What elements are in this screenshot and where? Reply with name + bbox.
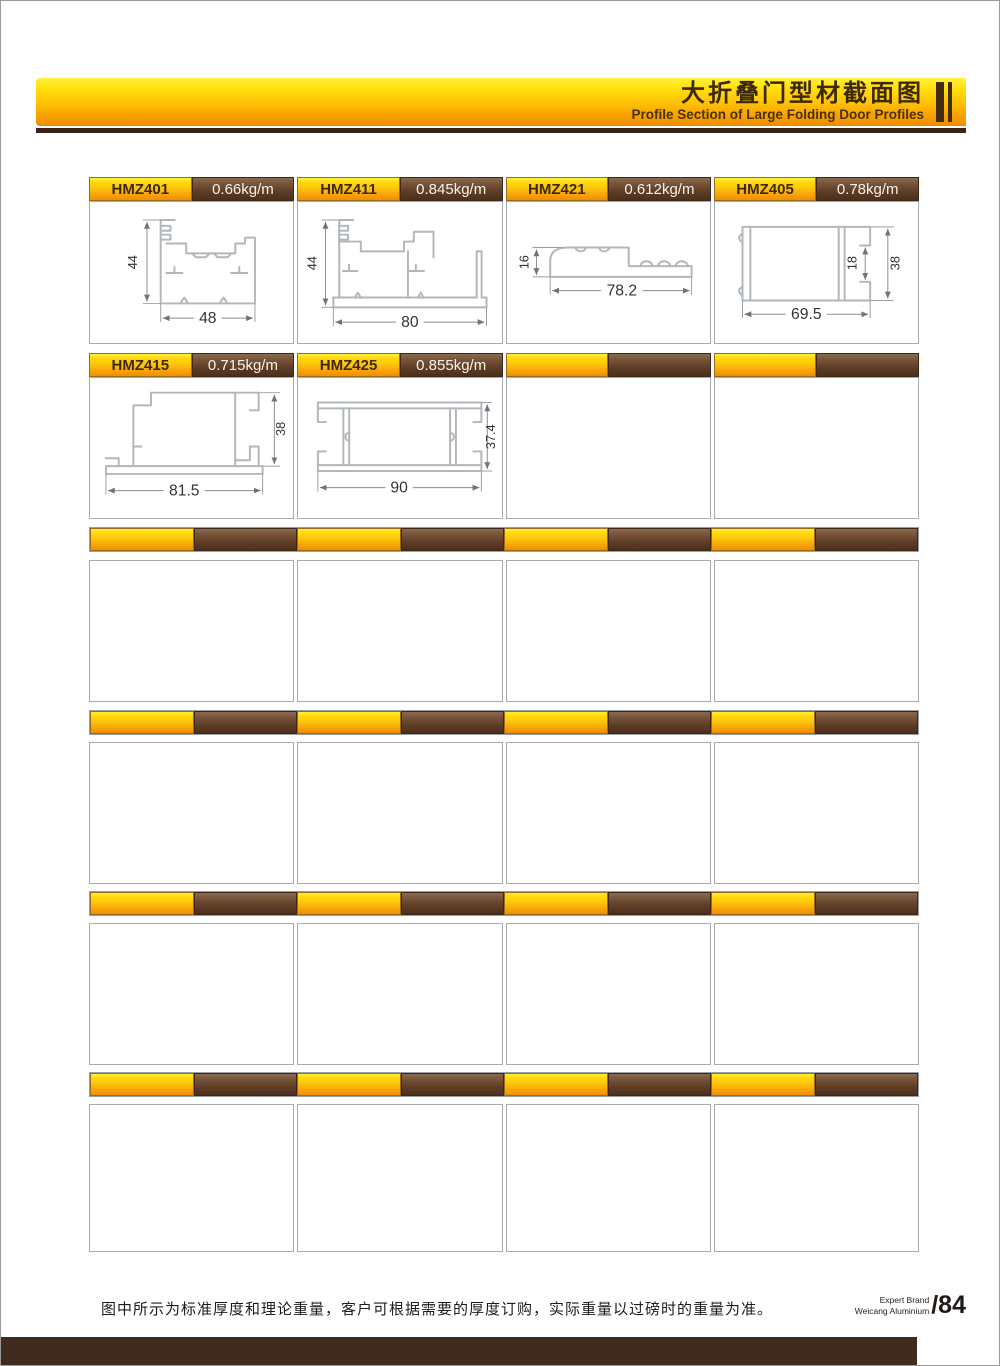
profile-code: HMZ405: [714, 177, 817, 201]
profile-weight: 0.66kg/m: [192, 177, 295, 201]
empty-cell: [506, 923, 711, 1065]
empty-cell: [714, 560, 919, 702]
brand-line-1: Expert Brand: [855, 1295, 930, 1306]
dim-width: 81.5: [169, 482, 200, 499]
empty-row: [89, 923, 919, 1065]
empty-cell: [506, 377, 711, 519]
page-header-band: 大折叠门型材截面图 Profile Section of Large Foldi…: [36, 78, 966, 126]
dim-height: 44: [125, 255, 140, 269]
catalog-page: 大折叠门型材截面图 Profile Section of Large Foldi…: [0, 0, 1000, 1366]
profile-header-hmz421: HMZ421 0.612kg/m: [506, 177, 711, 201]
empty-row: [89, 560, 919, 702]
header-row-2: HMZ415 0.715kg/m HMZ425 0.855kg/m: [89, 353, 919, 377]
profile-code: HMZ425: [297, 353, 400, 377]
empty-cell: [297, 923, 502, 1065]
profile-drawing-hmz415: 38 81.5: [90, 378, 293, 518]
empty-header-strip: [89, 1072, 919, 1097]
empty-row: [89, 742, 919, 884]
profile-cell-hmz405: 18 38 69.5: [714, 201, 919, 344]
empty-header-strip: [89, 710, 919, 735]
page-title-block: 大折叠门型材截面图 Profile Section of Large Foldi…: [631, 81, 924, 122]
empty-cell: [714, 923, 919, 1065]
profile-drawing-hmz421: 16 78.2: [507, 202, 710, 343]
empty-header-bar: [506, 353, 711, 377]
dim-width: 90: [391, 480, 409, 497]
profile-code: HMZ411: [297, 177, 400, 201]
title-underline: [36, 128, 966, 133]
profile-cell-hmz411: 44 80: [297, 201, 502, 344]
profile-header-hmz401: HMZ401 0.66kg/m: [89, 177, 294, 201]
drawing-row-1: 44 48 44 80: [89, 201, 919, 344]
profile-cell-hmz425: 37.4 90: [297, 377, 502, 519]
dim-width: 48: [199, 310, 217, 327]
dim-height: 38: [887, 256, 902, 270]
profile-drawing-hmz425: 37.4 90: [298, 378, 501, 518]
page-title-english: Profile Section of Large Folding Door Pr…: [631, 108, 924, 123]
dim-width: 69.5: [791, 306, 822, 323]
empty-cell: [297, 560, 502, 702]
profile-drawing-hmz411: 44 80: [298, 202, 501, 343]
empty-cell: [297, 742, 502, 884]
dim-height: 37.4: [483, 424, 498, 449]
dim-height: 38: [273, 422, 288, 436]
profile-weight: 0.612kg/m: [608, 177, 711, 201]
profile-grid: HMZ401 0.66kg/m HMZ411 0.845kg/m HMZ421 …: [89, 177, 919, 1252]
empty-header-bar: [714, 353, 919, 377]
profile-weight: 0.78kg/m: [816, 177, 919, 201]
profile-code: HMZ415: [89, 353, 192, 377]
empty-cell: [506, 742, 711, 884]
empty-cell: [714, 377, 919, 519]
profile-weight: 0.845kg/m: [400, 177, 503, 201]
profile-cell-hmz401: 44 48: [89, 201, 294, 344]
empty-cell: [714, 742, 919, 884]
empty-cell: [89, 923, 294, 1065]
dim-height: 44: [305, 256, 320, 270]
empty-header-strip: [89, 527, 919, 552]
empty-cell: [506, 560, 711, 702]
profile-header-hmz425: HMZ425 0.855kg/m: [297, 353, 502, 377]
empty-cell: [89, 560, 294, 702]
header-row-1: HMZ401 0.66kg/m HMZ411 0.845kg/m HMZ421 …: [89, 177, 919, 201]
profile-code: HMZ401: [89, 177, 192, 201]
profile-code: HMZ421: [506, 177, 609, 201]
profile-weight: 0.855kg/m: [400, 353, 503, 377]
dim-width: 78.2: [606, 283, 637, 300]
profile-drawing-hmz405: 18 38 69.5: [715, 202, 918, 343]
profile-cell-hmz415: 38 81.5: [89, 377, 294, 519]
brand-text: Expert Brand Weicang Aluminium: [855, 1295, 930, 1316]
empty-cell: [89, 742, 294, 884]
page-title-chinese: 大折叠门型材截面图: [631, 81, 924, 107]
title-accent-bars-icon: [936, 82, 952, 122]
empty-header-strip: [89, 891, 919, 916]
dim-height: 16: [516, 255, 531, 269]
drawing-row-2: 38 81.5 37.4 90: [89, 377, 919, 519]
dim-width: 80: [401, 314, 419, 331]
profile-header-hmz415: HMZ415 0.715kg/m: [89, 353, 294, 377]
profile-header-hmz405: HMZ405 0.78kg/m: [714, 177, 919, 201]
profile-cell-hmz421: 16 78.2: [506, 201, 711, 344]
empty-row: [89, 1104, 919, 1252]
empty-cell: [506, 1104, 711, 1252]
empty-cell: [89, 1104, 294, 1252]
empty-cell: [297, 1104, 502, 1252]
profile-header-hmz411: HMZ411 0.845kg/m: [297, 177, 502, 201]
bottom-bar: [1, 1337, 917, 1365]
empty-cell: [714, 1104, 919, 1252]
profile-drawing-hmz401: 44 48: [90, 202, 293, 343]
footer-note: 图中所示为标准厚度和理论重量，客户可根据需要的厚度订购，实际重量以过磅时的重量为…: [101, 1298, 773, 1319]
page-number: /84: [931, 1291, 966, 1320]
dim-slot: 18: [844, 256, 859, 270]
brand-block: Expert Brand Weicang Aluminium /84: [855, 1291, 966, 1320]
brand-line-2: Weicang Aluminium: [855, 1306, 930, 1317]
profile-weight: 0.715kg/m: [192, 353, 295, 377]
